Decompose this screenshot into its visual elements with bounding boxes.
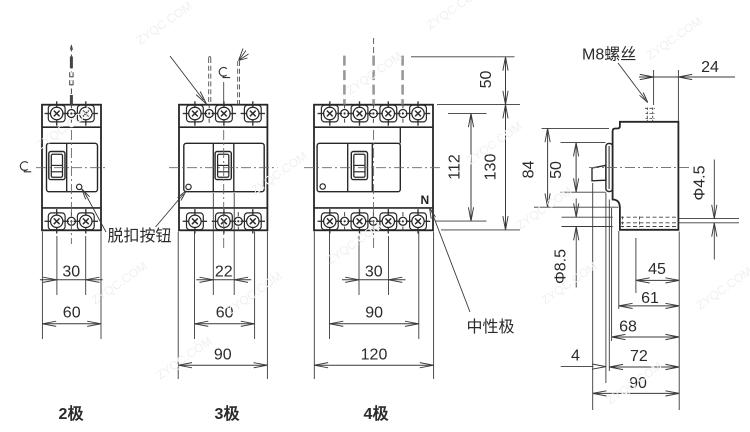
svg-text:4极: 4极: [364, 404, 390, 423]
svg-text:60: 60: [63, 305, 81, 322]
svg-text:中性极: 中性极: [467, 318, 515, 336]
svg-text:112: 112: [447, 154, 464, 180]
svg-text:90: 90: [365, 305, 383, 322]
svg-text:3极: 3极: [215, 404, 241, 423]
svg-text:22: 22: [215, 264, 233, 281]
svg-text:N: N: [421, 193, 430, 207]
svg-text:50: 50: [478, 71, 495, 89]
svg-text:4: 4: [571, 348, 580, 365]
svg-text:脱扣按钮: 脱扣按钮: [108, 227, 172, 245]
svg-text:72: 72: [630, 348, 648, 365]
svg-text:68: 68: [619, 319, 637, 336]
svg-text:84: 84: [521, 161, 538, 179]
svg-text:2极: 2极: [59, 404, 85, 423]
svg-text:61: 61: [641, 290, 659, 307]
svg-text:45: 45: [648, 261, 666, 278]
svg-text:24: 24: [701, 59, 719, 76]
svg-text:30: 30: [62, 264, 80, 281]
svg-text:90: 90: [214, 347, 232, 364]
svg-text:Φ4.5: Φ4.5: [692, 165, 709, 200]
svg-text:120: 120: [361, 347, 388, 364]
svg-text:50: 50: [548, 161, 565, 179]
svg-text:30: 30: [365, 264, 383, 281]
svg-text:M8螺丝: M8螺丝: [582, 46, 636, 64]
